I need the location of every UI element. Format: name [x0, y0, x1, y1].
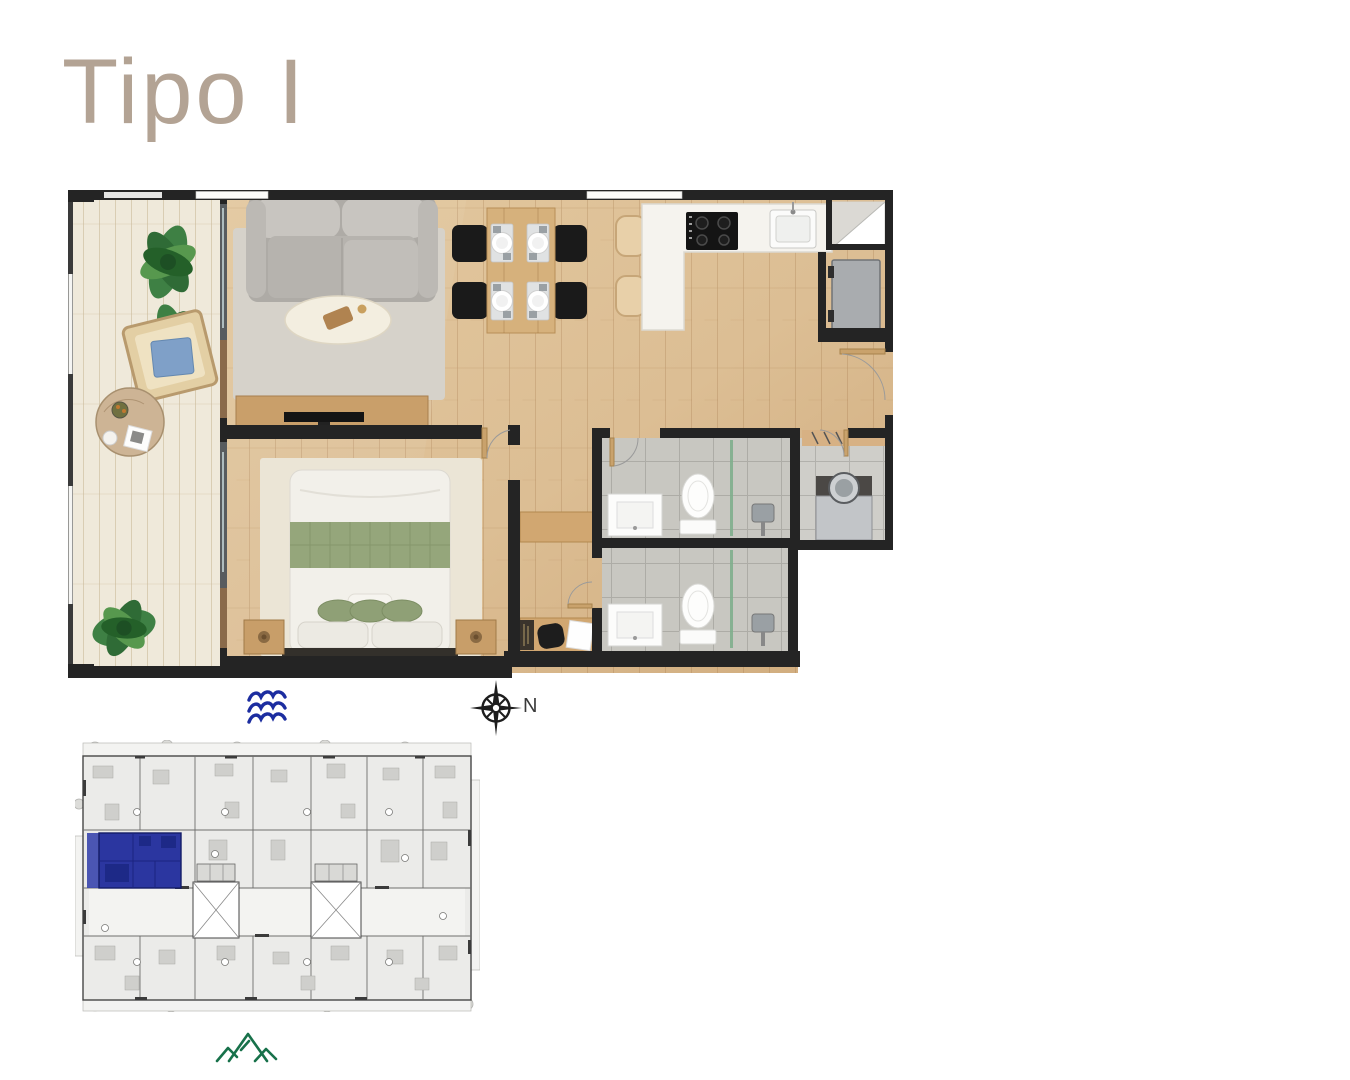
- dining-chair: [553, 282, 587, 319]
- living-room: [233, 196, 445, 432]
- waves-icon: [246, 690, 290, 728]
- bed: [282, 470, 458, 660]
- tv: [284, 412, 364, 422]
- coffee-table: [285, 296, 391, 344]
- pantry-closet: [832, 202, 885, 248]
- washing-machine: [816, 473, 872, 540]
- key-plan-highlighted-unit: [87, 833, 181, 888]
- page-title: Tipo I: [62, 42, 307, 143]
- key-plan-corridor: [89, 888, 465, 936]
- dining-chair: [553, 225, 587, 262]
- bedroom-door: [482, 428, 487, 458]
- bathroom-1-door: [610, 438, 614, 466]
- bathroom-sink: [608, 604, 662, 646]
- hall-sideboard: [520, 512, 598, 542]
- bedroom: [244, 458, 496, 660]
- nightstand: [456, 620, 496, 654]
- toilet: [680, 584, 716, 644]
- toilet: [680, 474, 716, 534]
- shower-glass: [730, 550, 733, 648]
- sofa: [246, 196, 438, 302]
- mountains-icon: [215, 1028, 279, 1066]
- building-notch: [798, 550, 893, 678]
- desk-papers: [566, 620, 594, 650]
- blue-pillow: [151, 337, 195, 377]
- nightstand: [244, 620, 284, 654]
- compass-north-label: N: [523, 695, 537, 718]
- desk-nook: [520, 618, 600, 652]
- cooktop: [686, 212, 738, 250]
- bathroom-2: [602, 548, 788, 651]
- compass-rose-icon: [468, 678, 526, 740]
- bathroom-sink: [608, 494, 662, 536]
- shower-glass: [730, 440, 733, 536]
- bathroom-2-door: [568, 604, 592, 608]
- main-floor-plan: [68, 190, 893, 678]
- laundry-door: [844, 430, 848, 456]
- key-plan: [75, 740, 480, 1012]
- bathroom-1: [602, 438, 790, 538]
- entry-door: [840, 349, 885, 354]
- balcony-side-table: [96, 388, 164, 456]
- dining-chair: [452, 225, 488, 262]
- brochure-page: Tipo I: [0, 0, 1350, 1080]
- fridge: [828, 260, 880, 330]
- dining-chair: [452, 282, 488, 319]
